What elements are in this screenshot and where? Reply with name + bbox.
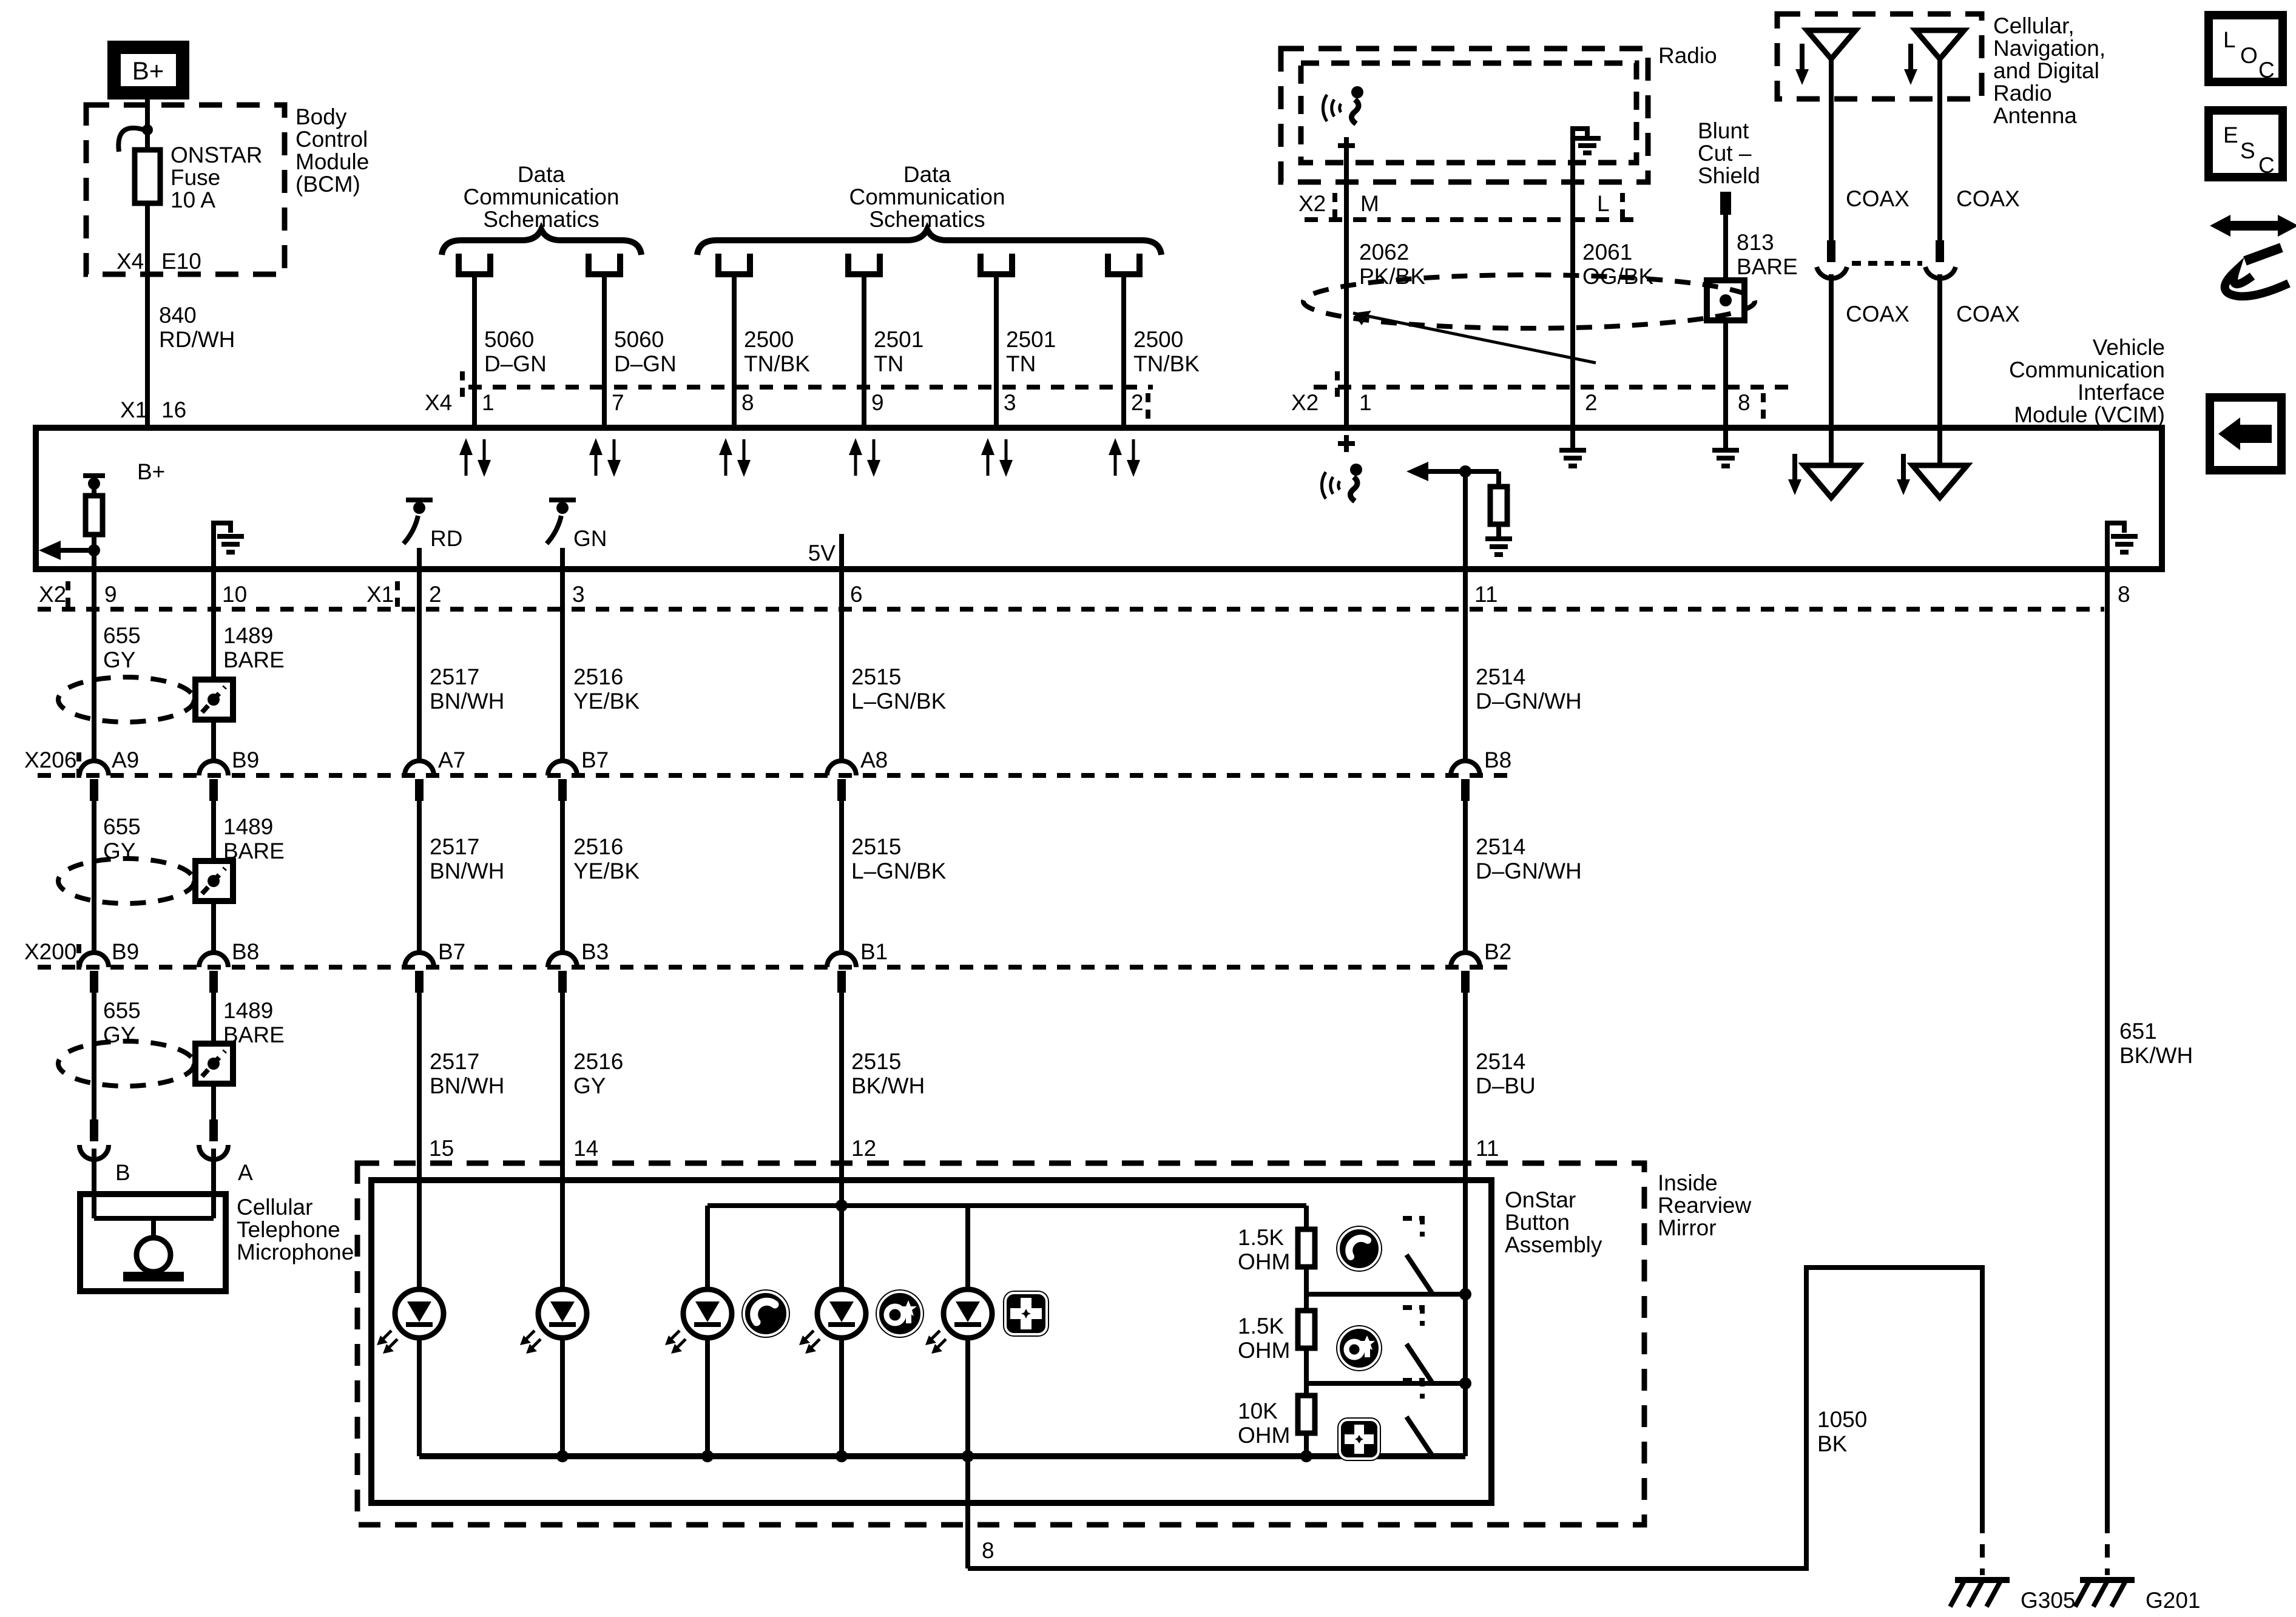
svg-text:GN: GN [573, 526, 607, 551]
svg-text:Navigation,: Navigation, [1993, 36, 2105, 61]
svg-text:X4: X4 [116, 249, 144, 274]
svg-text:L–GN/BK: L–GN/BK [851, 859, 947, 883]
cross-icon [1337, 1417, 1381, 1461]
svg-text:B7: B7 [438, 939, 465, 964]
radio-ground-icon [1573, 129, 1601, 163]
phone-icon [741, 1289, 790, 1338]
svg-text:E10: E10 [161, 249, 201, 274]
svg-text:G201: G201 [2146, 1588, 2201, 1613]
svg-text:COAX: COAX [1956, 302, 2020, 326]
svg-text:16: 16 [161, 397, 186, 422]
resistor-icon [1298, 1396, 1315, 1433]
svg-text:TN/BK: TN/BK [1133, 351, 1200, 376]
svg-text:X1: X1 [120, 397, 147, 422]
svg-text:12: 12 [851, 1136, 876, 1161]
connector-row-radio-vcim: X2 1 2 8 [1291, 371, 1796, 420]
svg-text:E: E [2223, 123, 2238, 147]
svg-text:X2: X2 [1298, 191, 1326, 216]
svg-text:5060: 5060 [614, 327, 664, 352]
svg-text:Microphone: Microphone [237, 1240, 354, 1264]
svg-text:11: 11 [1474, 582, 1497, 607]
resistor-icon [1298, 1311, 1315, 1348]
svg-text:9: 9 [104, 582, 117, 607]
chassis-ground-icon [1950, 1580, 2010, 1607]
blunt-cut-shield: Blunt Cut – Shield 813 BARE [1698, 118, 1798, 428]
svg-text:2: 2 [429, 582, 442, 607]
data-comm-right: Data Communication Schematics [697, 162, 1161, 255]
antenna-module: Cellular, Navigation, and Digital Radio … [1777, 13, 2105, 240]
button-resistor-network: 1.5K OHM 1.5K OHM 10K OHM [1238, 1218, 1471, 1461]
shield-ellipse [1303, 275, 1755, 328]
wiring-diagram-page: B+ Body Control Module (BCM) ONSTAR Fuse… [0, 0, 2296, 1617]
ground-run-651: 651 BK/WH G201 [2075, 1019, 2201, 1613]
svg-text:2517: 2517 [430, 1049, 479, 1074]
svg-text:Communication: Communication [463, 184, 619, 209]
svg-text:G305: G305 [2021, 1588, 2076, 1613]
svg-text:BK/WH: BK/WH [2119, 1043, 2193, 1068]
bcm-connector-x4: X4 E10 [116, 249, 201, 274]
connector-row-x206: X206 A9 B9 A7 B7 A8 B8 [24, 748, 1511, 801]
data-comm-wires: 5060 D–GN 5060 D–GN 2500 TN/BK 2501 TN 2… [459, 254, 1200, 428]
svg-text:B3: B3 [581, 939, 609, 964]
svg-text:2514: 2514 [1476, 1049, 1525, 1074]
svg-text:D–GN/WH: D–GN/WH [1476, 859, 1582, 883]
phone-icon [1336, 1226, 1382, 1272]
svg-text:X2: X2 [39, 582, 66, 607]
svg-text:Cut –: Cut – [1698, 141, 1752, 166]
svg-text:L: L [2223, 27, 2236, 52]
page-arrow-icon [39, 541, 61, 560]
svg-text:X206: X206 [24, 748, 76, 772]
vcim-internal-source [39, 476, 105, 569]
svg-text:1489: 1489 [223, 998, 273, 1023]
svg-text:RD/WH: RD/WH [159, 327, 235, 352]
wire-840-label: 840 RD/WH [159, 303, 235, 352]
svg-text:BARE: BARE [1737, 254, 1798, 279]
esc-icon[interactable]: E S C [2209, 110, 2283, 178]
svg-text:C: C [2258, 153, 2275, 178]
svg-text:Communication: Communication [2009, 357, 2165, 382]
svg-text:Radio: Radio [1658, 43, 1717, 68]
svg-text:6: 6 [850, 582, 863, 607]
svg-text:BN/WH: BN/WH [430, 859, 504, 883]
gn-switch-icon: GN [547, 500, 607, 569]
data-direction-arrows [459, 438, 1140, 477]
brace [442, 229, 641, 255]
svg-text:B9: B9 [232, 748, 259, 772]
svg-text:A8: A8 [860, 748, 888, 772]
led-icon [520, 1289, 587, 1354]
svg-text:ONSTAR: ONSTAR [171, 143, 262, 167]
back-arrow-icon[interactable] [2210, 397, 2281, 470]
inline-connector-icon [79, 953, 1480, 993]
svg-text:RD: RD [430, 526, 462, 551]
svg-text:TN: TN [1006, 351, 1036, 376]
svg-text:D–GN/WH: D–GN/WH [1476, 689, 1582, 714]
svg-text:2500: 2500 [744, 327, 794, 352]
svg-text:B: B [115, 1160, 130, 1185]
svg-text:B7: B7 [581, 748, 609, 772]
svg-text:X200: X200 [24, 939, 76, 964]
svg-text:OHM: OHM [1238, 1338, 1290, 1363]
svg-text:8: 8 [1738, 390, 1751, 415]
svg-text:TN: TN [874, 351, 903, 376]
svg-text:Data: Data [518, 162, 566, 187]
svg-text:(BCM): (BCM) [295, 172, 360, 197]
svg-text:D–BU: D–BU [1476, 1073, 1536, 1098]
svg-text:Blunt: Blunt [1698, 118, 1749, 143]
vcim-internal-ground-10 [214, 523, 244, 569]
microphone-module: Cellular Telephone Microphone [80, 1194, 354, 1291]
onstar-icon [1336, 1325, 1382, 1371]
svg-text:Data: Data [903, 162, 951, 187]
svg-text:Assembly: Assembly [1505, 1232, 1602, 1257]
svg-text:COAX: COAX [1846, 186, 1909, 211]
svg-text:2061: 2061 [1582, 240, 1632, 265]
vcim-connector-x1-16: X1 16 [120, 397, 186, 422]
svg-text:COAX: COAX [1846, 302, 1909, 326]
svg-text:S: S [2240, 138, 2255, 163]
svg-text:Module: Module [295, 149, 369, 174]
repair-info-icon[interactable] [2210, 215, 2296, 296]
vcim-ground-shield [1712, 428, 1739, 466]
svg-text:655: 655 [103, 623, 141, 648]
led-icon [925, 1289, 992, 1354]
svg-text:L–GN/BK: L–GN/BK [851, 689, 947, 714]
svg-text:651: 651 [2119, 1019, 2157, 1044]
svg-text:9: 9 [871, 390, 884, 415]
svg-text:Module (VCIM): Module (VCIM) [2014, 402, 2165, 427]
page-arrow-icon [1406, 462, 1428, 481]
antenna-icon [1904, 30, 1964, 240]
svg-text:Body: Body [295, 104, 347, 129]
svg-text:2501: 2501 [874, 327, 923, 352]
svg-text:X4: X4 [425, 390, 452, 415]
speaker-icon [1323, 86, 1363, 124]
svg-text:7: 7 [612, 390, 624, 415]
svg-text:655: 655 [103, 998, 141, 1023]
svg-text:BK/WH: BK/WH [851, 1073, 925, 1098]
svg-text:8: 8 [741, 390, 754, 415]
radio-module: Radio [1281, 43, 1717, 428]
svg-text:TN/BK: TN/BK [744, 351, 810, 376]
svg-text:YE/BK: YE/BK [573, 689, 640, 714]
svg-text:and Digital: and Digital [1993, 58, 2099, 83]
svg-text:655: 655 [103, 814, 141, 839]
svg-text:OHM: OHM [1238, 1249, 1290, 1274]
svg-text:Rearview: Rearview [1658, 1193, 1751, 1218]
svg-text:Interface: Interface [2078, 380, 2165, 405]
battery-feed-symbol: B+ [114, 47, 183, 93]
svg-text:B1: B1 [860, 939, 888, 964]
svg-text:Vehicle: Vehicle [2093, 335, 2165, 360]
bplus-box-label: B+ [132, 56, 164, 85]
onstar-vcim-schematic: B+ Body Control Module (BCM) ONSTAR Fuse… [0, 0, 2296, 1617]
svg-text:Communication: Communication [849, 184, 1005, 209]
svg-text:15: 15 [429, 1136, 454, 1161]
svg-text:2517: 2517 [430, 664, 479, 689]
svg-text:Antenna: Antenna [1993, 103, 2077, 128]
antenna-icon [1804, 465, 1859, 498]
svg-text:3: 3 [572, 582, 585, 607]
svg-text:X2: X2 [1291, 390, 1319, 415]
svg-text:M: M [1360, 191, 1379, 216]
vcim-antenna-inputs [1788, 428, 1967, 498]
svg-text:Fuse: Fuse [171, 165, 220, 190]
resistor-icon [1490, 487, 1507, 524]
svg-text:2515: 2515 [851, 1049, 901, 1074]
svg-text:COAX: COAX [1956, 186, 2020, 211]
svg-text:1050: 1050 [1817, 1407, 1867, 1432]
svg-text:OHM: OHM [1238, 1423, 1290, 1448]
svg-text:Cellular,: Cellular, [1993, 13, 2075, 38]
svg-text:2516: 2516 [573, 1049, 623, 1074]
svg-text:1.5K: 1.5K [1238, 1314, 1284, 1338]
svg-text:YE/BK: YE/BK [573, 859, 640, 883]
svg-text:Control: Control [295, 127, 368, 152]
ground-run-1050: 8 1050 BK G305 [968, 1268, 2076, 1613]
svg-text:813: 813 [1737, 230, 1774, 255]
svg-text:10 A: 10 A [171, 187, 215, 212]
svg-text:Inside: Inside [1658, 1170, 1718, 1195]
svg-text:2514: 2514 [1476, 834, 1525, 859]
speaker-icon [1322, 464, 1362, 501]
mirror-box [357, 1163, 1644, 1525]
svg-text:Telephone: Telephone [237, 1217, 340, 1242]
svg-text:BK: BK [1817, 1431, 1848, 1456]
inline-connector-icon [79, 761, 1480, 801]
loc-icon[interactable]: L O C [2209, 15, 2283, 83]
svg-text:2515: 2515 [851, 834, 901, 859]
led-feed [707, 1200, 1306, 1289]
led-icon [799, 1289, 866, 1354]
shield-ellipse [58, 1041, 194, 1086]
svg-text:BARE: BARE [223, 647, 285, 672]
vcim-ground-radio2 [1559, 428, 1586, 466]
svg-text:B2: B2 [1484, 939, 1511, 964]
svg-text:2: 2 [1585, 390, 1598, 415]
svg-text:L: L [1597, 191, 1610, 216]
connector-row-x4: X4 1 7 8 9 3 2 [425, 371, 1153, 420]
antenna-icon [1913, 465, 1967, 498]
cross-icon [1003, 1291, 1049, 1337]
vcim-bplus-label: B+ [137, 459, 165, 484]
shield-ellipse [58, 859, 194, 903]
rd-switch-icon: RD [403, 500, 462, 569]
led-icon [665, 1289, 732, 1354]
svg-text:2517: 2517 [430, 834, 479, 859]
svg-text:A7: A7 [438, 748, 465, 772]
svg-text:Mirror: Mirror [1658, 1215, 1717, 1240]
svg-text:2501: 2501 [1006, 327, 1056, 352]
vcim-title: Vehicle Communication Interface Module (… [2009, 335, 2165, 427]
svg-text:C: C [2258, 58, 2275, 83]
svg-text:1489: 1489 [223, 814, 273, 839]
svg-text:8: 8 [982, 1538, 994, 1563]
vcim-box [36, 428, 2162, 569]
connector-row-radio: X2 M L [1298, 191, 1638, 220]
svg-text:1: 1 [482, 390, 495, 415]
svg-text:1: 1 [1359, 390, 1372, 415]
fuse-icon [135, 150, 160, 203]
svg-text:BN/WH: BN/WH [430, 1073, 504, 1098]
vcim-speaker [1322, 435, 1362, 501]
shield-ellipse [58, 677, 194, 722]
chassis-ground-icon [2075, 1580, 2135, 1607]
svg-text:BN/WH: BN/WH [430, 689, 504, 714]
svg-text:A9: A9 [112, 748, 139, 772]
vcim-mic-bias [1406, 462, 1512, 555]
button-switch-icon [1403, 1218, 1432, 1455]
svg-text:1489: 1489 [223, 623, 273, 648]
svg-text:2516: 2516 [573, 664, 623, 689]
svg-text:5V: 5V [808, 541, 836, 565]
svg-text:5060: 5060 [484, 327, 534, 352]
svg-text:2: 2 [1131, 390, 1144, 415]
svg-text:Button: Button [1505, 1210, 1570, 1235]
blunt-terminal-icon [1720, 192, 1731, 215]
svg-text:X1: X1 [366, 582, 394, 607]
svg-text:1.5K: 1.5K [1238, 1225, 1284, 1250]
svg-text:Shield: Shield [1698, 163, 1760, 188]
svg-text:8: 8 [2118, 582, 2130, 607]
svg-text:10K: 10K [1238, 1399, 1278, 1423]
svg-text:O: O [2240, 43, 2258, 68]
onstar-icon [876, 1289, 924, 1338]
connector-row-x200: X200 B9 B8 B7 B3 B1 B2 [24, 939, 1511, 993]
svg-text:14: 14 [573, 1136, 598, 1161]
svg-text:GY: GY [573, 1073, 606, 1098]
svg-text:2500: 2500 [1133, 327, 1183, 352]
led-icons [377, 1289, 1049, 1354]
svg-text:840: 840 [159, 303, 197, 328]
svg-text:B8: B8 [1484, 748, 1511, 772]
svg-text:10: 10 [222, 582, 247, 607]
svg-text:B9: B9 [112, 939, 139, 964]
led-icon [377, 1289, 444, 1354]
mic-element-icon [137, 1238, 171, 1272]
coax-connectors: COAX COAX COAX COAX [1817, 186, 2020, 428]
svg-text:D–GN: D–GN [484, 351, 547, 376]
connector-row-vcim-bottom: X2 9 10 X1 2 3 6 11 8 [38, 581, 2130, 609]
svg-text:2062: 2062 [1359, 240, 1409, 265]
svg-text:OnStar: OnStar [1505, 1187, 1576, 1212]
data-comm-left: Data Communication Schematics [442, 162, 641, 255]
svg-text:3: 3 [1004, 390, 1016, 415]
svg-text:11: 11 [1476, 1136, 1499, 1161]
svg-text:2515: 2515 [851, 664, 901, 689]
shield-leader-line [1353, 313, 1596, 363]
svg-text:2516: 2516 [573, 834, 623, 859]
svg-text:Cellular: Cellular [237, 1195, 312, 1220]
svg-text:A: A [238, 1160, 253, 1185]
svg-text:GY: GY [103, 647, 135, 672]
svg-text:B8: B8 [232, 939, 259, 964]
mic-connector: B A [79, 1119, 253, 1185]
vcim-ground-8 [2107, 523, 2138, 569]
resistor-icon [1298, 1229, 1315, 1267]
svg-text:D–GN: D–GN [614, 351, 677, 376]
svg-text:2514: 2514 [1476, 664, 1525, 689]
svg-text:Radio: Radio [1993, 81, 2052, 106]
vcim-5v: 5V [808, 534, 842, 569]
brace [697, 229, 1161, 255]
